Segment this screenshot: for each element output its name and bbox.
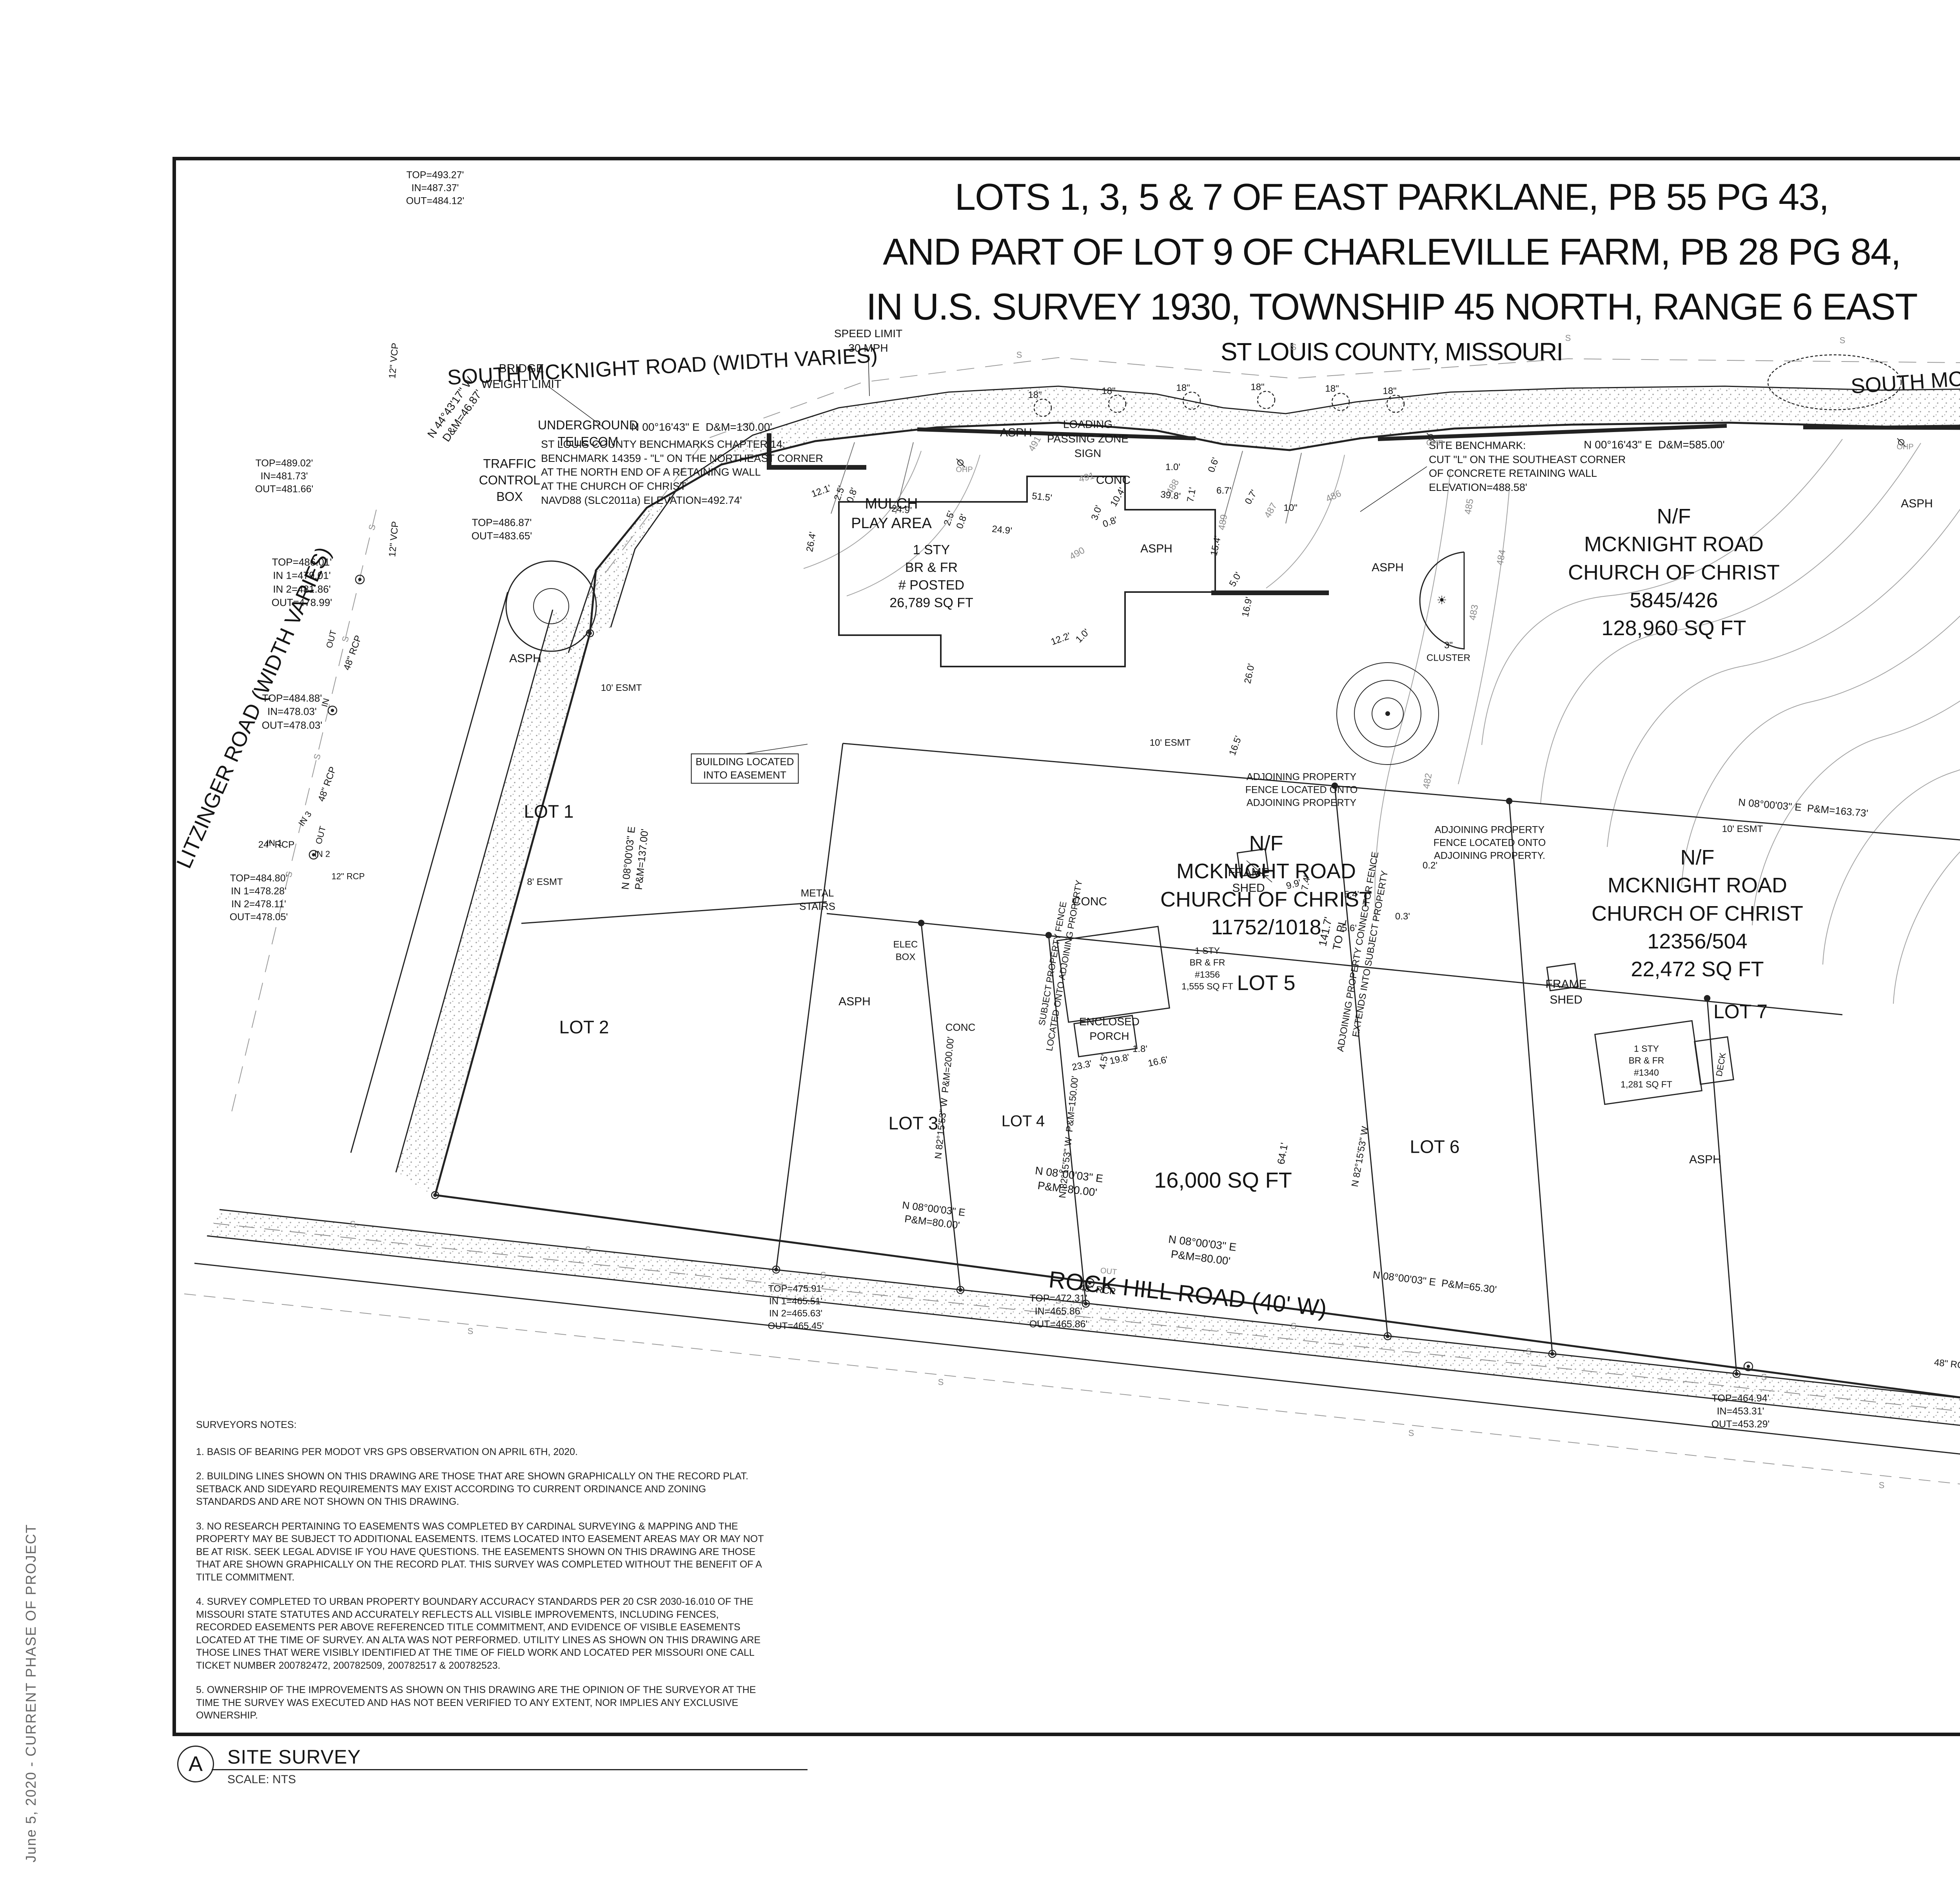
map-label: N/F MCKNIGHT ROAD CHURCH OF CHRIST 5845/…	[1568, 503, 1780, 642]
map-label: TOP=493.27' IN=487.37' OUT=484.12'	[406, 169, 465, 208]
map-label: BUILDING LOCATED INTO EASEMENT	[691, 754, 799, 784]
map-label: ASPH	[1689, 1152, 1721, 1168]
map-label: 18"	[1383, 385, 1396, 398]
map-label: S	[1291, 341, 1297, 352]
map-label: 7.4'	[1299, 875, 1314, 892]
map-label: ASPH	[1901, 496, 1933, 512]
map-label: S	[938, 1376, 944, 1388]
map-label: ASPH	[838, 994, 871, 1010]
map-label: OHP	[956, 465, 973, 475]
map-label: TOP=464.94' IN=453.31' OUT=453.29'	[1711, 1392, 1770, 1431]
map-label: N 00°16'43" E D&M=585.00'	[1584, 438, 1725, 452]
surveyor-note: 5. OWNERSHIP OF THE IMPROVEMENTS AS SHOW…	[196, 1684, 768, 1722]
map-label: S	[1761, 1371, 1767, 1382]
surveyor-note: 3. NO RESEARCH PERTAINING TO EASEMENTS W…	[196, 1520, 768, 1584]
map-label: 16,000 SQ FT	[1154, 1166, 1292, 1195]
map-label: CONC	[946, 1021, 976, 1034]
map-label: ASPH	[509, 651, 541, 667]
map-label: ☀	[1437, 593, 1447, 609]
map-label: 1 STY BR & FR #1340 1,281 SQ FT	[1621, 1043, 1672, 1090]
map-label: 24.9'	[891, 503, 912, 517]
map-label: 1.0'	[1165, 461, 1180, 474]
map-label: LOT 1	[524, 800, 574, 824]
map-label: 10' ESMT	[1722, 823, 1763, 836]
map-label: S	[1565, 332, 1571, 343]
map-label: TOP=486.01' IN 1=479.01' IN 2=481.86' OU…	[272, 555, 332, 609]
map-label: ASPH	[1140, 541, 1172, 557]
map-label: ADJOINING PROPERTY FENCE LOCATED ONTO AD…	[1434, 824, 1546, 863]
map-label: TOP=484.88' IN=478.03' OUT=478.03'	[262, 692, 323, 732]
map-label: CONC	[1096, 472, 1131, 488]
surveyor-notes: SURVEYORS NOTES: 1. BASIS OF BEARING PER…	[196, 1419, 768, 1734]
map-label: 10"	[1283, 502, 1297, 514]
map-label: ELEC BOX	[893, 938, 918, 963]
map-label: 18"	[1176, 382, 1190, 394]
map-label: S	[1840, 334, 1846, 346]
map-label: 12" RCP	[332, 870, 365, 882]
map-label: S	[1526, 1346, 1532, 1357]
map-label: SPEED LIMIT 30 MPH	[834, 327, 902, 356]
map-label: 3" CLUSTER	[1426, 639, 1470, 664]
map-label: ST LOUIS COUNTY BENCHMARKS CHAPTER 14: B…	[541, 438, 823, 507]
map-label: OHP	[1896, 442, 1913, 452]
map-label: LOT 2	[559, 1015, 609, 1039]
surveyor-note: 2. BUILDING LINES SHOWN ON THIS DRAWING …	[196, 1470, 768, 1508]
map-label: IN 2	[314, 848, 330, 859]
map-label: TOP=484.80' IN 1=478.28' IN 2=478.11' OU…	[230, 872, 288, 924]
map-label: OUT	[1100, 1266, 1118, 1278]
map-label: S	[1879, 1479, 1885, 1491]
map-label: N 00°16'43" E D&M=130.00'	[631, 420, 772, 435]
map-label: FRAME SHED	[1546, 976, 1587, 1007]
map-label: TOP=489.02' IN=481.73' OUT=481.66'	[255, 457, 314, 496]
map-label: LOT 4	[1002, 1111, 1045, 1132]
map-label: 18"	[1325, 383, 1339, 395]
map-label: S	[1016, 349, 1022, 360]
map-label: LOT 3	[889, 1112, 938, 1135]
map-label: LOADING PASSING ZONE SIGN	[1047, 418, 1129, 461]
sheet-main-title-3: IN U.S. SURVEY 1930, TOWNSHIP 45 NORTH, …	[431, 285, 1960, 329]
surveyor-note: 4. SURVEY COMPLETED TO URBAN PROPERTY BO…	[196, 1595, 768, 1672]
map-label: 18"	[1250, 381, 1264, 394]
sheet-main-title-1: LOTS 1, 3, 5 & 7 OF EAST PARKLANE, PB 55…	[431, 176, 1960, 219]
surveyor-note: 1. BASIS OF BEARING PER MODOT VRS GPS OB…	[196, 1446, 768, 1459]
map-label: 5.6'	[1342, 922, 1357, 935]
map-label: 18"	[1028, 389, 1042, 401]
map-label: IN 1	[267, 837, 282, 848]
view-marker-line	[212, 1769, 808, 1770]
view-scale: SCALE: NTS	[227, 1773, 296, 1786]
map-label: TOP=486.87' OUT=483.65'	[472, 516, 532, 543]
map-label: S	[1056, 1295, 1062, 1306]
map-label: S	[820, 1269, 826, 1281]
map-label: ADJOINING PROPERTY FENCE LOCATED ONTO AD…	[1245, 771, 1358, 810]
map-label: METAL STAIRS	[799, 887, 835, 914]
map-label: S	[1291, 1320, 1297, 1332]
map-label: 18"	[1102, 385, 1115, 398]
survey-sheet: June 5, 2020 - CURRENT PHASE OF PROJECT	[0, 0, 1960, 1882]
view-marker: A	[177, 1746, 214, 1782]
map-label: 1.8'	[1132, 1043, 1147, 1055]
map-label: 39.8'	[1160, 489, 1181, 503]
sheet-main-title-2: AND PART OF LOT 9 OF CHARLEVILLE FARM, P…	[431, 231, 1960, 274]
notes-title: SURVEYORS NOTES:	[196, 1419, 768, 1431]
map-label: 5.4'	[1344, 888, 1359, 901]
map-label: 10' ESMT	[601, 682, 642, 694]
map-label: ASPH	[1000, 425, 1032, 441]
map-label: 24.9'	[991, 523, 1013, 538]
map-label: 1 STY BR & FR # POSTED 26,789 SQ FT	[889, 541, 973, 612]
map-label: 8' ESMT	[527, 876, 563, 888]
map-label: ENCLOSED PORCH	[1079, 1015, 1140, 1044]
map-label: BRIDGE WEIGHT LIMIT	[481, 361, 561, 392]
map-label: OHP	[1426, 438, 1443, 448]
map-label: LOT 7	[1713, 999, 1768, 1025]
map-label: TRAFFIC CONTROL BOX	[479, 456, 540, 505]
map-label: 51.5'	[1031, 490, 1053, 505]
map-label: 6.7'	[1216, 485, 1231, 497]
map-label: TOP=475.91' IN 1=465.51' IN 2=465.63' OU…	[768, 1283, 824, 1333]
map-label: 7.1'	[1184, 487, 1199, 503]
map-label: ASPH	[1372, 560, 1404, 576]
map-label: N/F MCKNIGHT ROAD CHURCH OF CHRIST 12356…	[1592, 844, 1803, 983]
view-title: SITE SURVEY	[227, 1746, 361, 1768]
map-label: 0.3'	[1395, 910, 1410, 923]
map-label: S	[585, 1244, 591, 1255]
map-label: FRAME SHED	[1228, 865, 1269, 896]
map-label: S	[468, 1325, 474, 1337]
map-label: 1 STY BR & FR #1356 1,555 SQ FT	[1181, 945, 1233, 992]
map-label: 0.2'	[1423, 859, 1437, 872]
map-label: 10' ESMT	[1150, 737, 1191, 749]
map-label: S	[350, 1218, 356, 1230]
map-label: LOT 6	[1410, 1135, 1460, 1159]
map-label: S	[1408, 1427, 1414, 1439]
